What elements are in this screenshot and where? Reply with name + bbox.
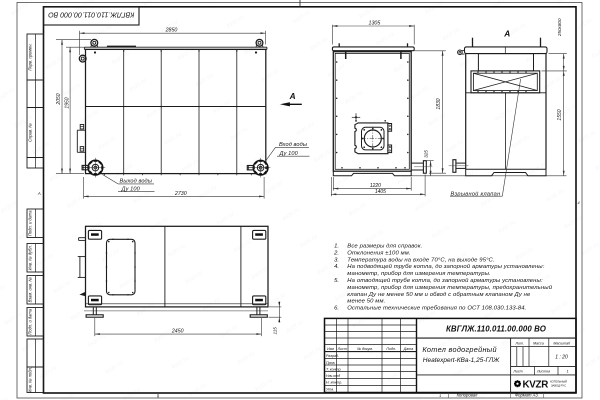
svg-text:Котел водогрейный: Котел водогрейный bbox=[422, 345, 497, 354]
svg-text:4.: 4. bbox=[334, 264, 339, 270]
svg-text:менее 50 мм.: менее 50 мм. bbox=[347, 299, 385, 305]
svg-text:Подп. и дата: Подп. и дата bbox=[28, 308, 33, 334]
svg-text:Отклонения ±100 мм.: Отклонения ±100 мм. bbox=[347, 250, 410, 256]
svg-text:Лист: Лист bbox=[512, 370, 522, 374]
svg-text:манометр, прибор для измерения: манометр, прибор для измерения температу… bbox=[347, 271, 491, 277]
svg-text:Инв. № дубл.: Инв. № дубл. bbox=[28, 245, 33, 270]
svg-text:А: А bbox=[289, 91, 296, 101]
svg-text:КОТЕЛЬНЫЙ: КОТЕЛЬНЫЙ bbox=[550, 380, 567, 384]
svg-text:Н. контр.: Н. контр. bbox=[326, 381, 342, 385]
svg-text:Подп. и дата: Подп. и дата bbox=[28, 210, 33, 236]
svg-text:Масштаб: Масштаб bbox=[553, 341, 571, 345]
svg-text:На отводящей трубе котла, до з: На отводящей трубе котла, до запорной ар… bbox=[347, 277, 543, 284]
svg-text:Копировал: Копировал bbox=[457, 393, 478, 398]
svg-text:КВГЛЖ.110.011.00.000 ВО: КВГЛЖ.110.011.00.000 ВО bbox=[446, 324, 546, 333]
svg-text:Остальные технические требован: Остальные технические требования по ОСТ … bbox=[347, 306, 526, 312]
svg-text:325: 325 bbox=[423, 150, 428, 158]
svg-text:2730: 2730 bbox=[174, 191, 187, 197]
svg-text:Листов: Листов bbox=[536, 370, 550, 374]
svg-text:№ докум.: № докум. bbox=[357, 347, 373, 351]
svg-text:2050: 2050 bbox=[56, 93, 62, 105]
svg-text:1405: 1405 bbox=[375, 189, 386, 195]
svg-text:1 : 20: 1 : 20 bbox=[555, 354, 568, 360]
svg-text:Инв. № подл.: Инв. № подл. bbox=[28, 367, 33, 392]
svg-text:2450: 2450 bbox=[171, 329, 184, 335]
svg-text:1: 1 bbox=[566, 370, 568, 374]
svg-text:Heatexpert-КВа-1,25-ГЛЖ: Heatexpert-КВа-1,25-ГЛЖ bbox=[423, 357, 500, 364]
svg-text:Утв.: Утв. bbox=[326, 388, 334, 392]
svg-text:Все размеры для справок.: Все размеры для справок. bbox=[347, 244, 422, 250]
svg-text:Изм: Изм bbox=[327, 347, 334, 351]
svg-text:Т. контр.: Т. контр. bbox=[326, 367, 342, 371]
svg-text:А: А bbox=[503, 28, 510, 38]
svg-text:1950: 1950 bbox=[64, 97, 70, 108]
svg-text:2850: 2850 bbox=[165, 28, 178, 34]
svg-text:Лит.: Лит. bbox=[514, 341, 523, 345]
svg-text:5.: 5. bbox=[334, 278, 339, 284]
svg-text:На подводящей трубе котла, до: На подводящей трубе котла, до запорной а… bbox=[347, 263, 544, 270]
svg-text:Формат А3: Формат А3 bbox=[515, 393, 539, 398]
svg-text:Разраб.: Разраб. bbox=[326, 354, 339, 358]
svg-text:Масса: Масса bbox=[533, 341, 544, 345]
svg-text:1550: 1550 bbox=[557, 109, 563, 120]
svg-text:3.: 3. bbox=[334, 257, 339, 263]
svg-text:1305: 1305 bbox=[369, 20, 381, 26]
svg-text:6.: 6. bbox=[334, 306, 339, 312]
svg-text:Подп.: Подп. bbox=[386, 347, 396, 351]
svg-text:манометр, прибор для измерения: манометр, прибор для измерения температу… bbox=[347, 284, 552, 291]
svg-text:1830: 1830 bbox=[436, 98, 442, 109]
svg-text:KVZR: KVZR bbox=[523, 379, 549, 390]
svg-text:1: 1 bbox=[439, 394, 441, 398]
svg-text:Пров.: Пров. bbox=[326, 361, 335, 365]
svg-text:250х800: 250х800 bbox=[557, 18, 562, 37]
svg-text:Перв. примен.: Перв. примен. bbox=[28, 43, 33, 70]
svg-text:ЗАВОД РУС: ЗАВОД РУС bbox=[551, 383, 566, 387]
svg-text:1.: 1. bbox=[334, 244, 339, 250]
svg-text:Взам. инв. №: Взам. инв. № bbox=[28, 277, 33, 303]
svg-text:2.: 2. bbox=[333, 250, 339, 256]
svg-text:Температура воды на входе 70°С: Температура воды на входе 70°С, на выход… bbox=[347, 257, 494, 263]
svg-text:Дата: Дата bbox=[403, 347, 413, 351]
svg-text:клапан Ду не менее 50 мм и обв: клапан Ду не менее 50 мм и обвод с обрат… bbox=[347, 292, 531, 298]
svg-text:Лист: Лист bbox=[337, 347, 347, 351]
svg-text:А: А bbox=[37, 191, 41, 196]
svg-text:Справ. №: Справ. № bbox=[28, 123, 33, 142]
svg-text:КВГЛЖ.110.011.00.000 ВО: КВГЛЖ.110.011.00.000 ВО bbox=[48, 11, 135, 19]
svg-text:Нач.отд: Нач.отд bbox=[326, 374, 340, 378]
svg-text:4: 4 bbox=[578, 201, 580, 205]
svg-text:115: 115 bbox=[273, 327, 278, 335]
